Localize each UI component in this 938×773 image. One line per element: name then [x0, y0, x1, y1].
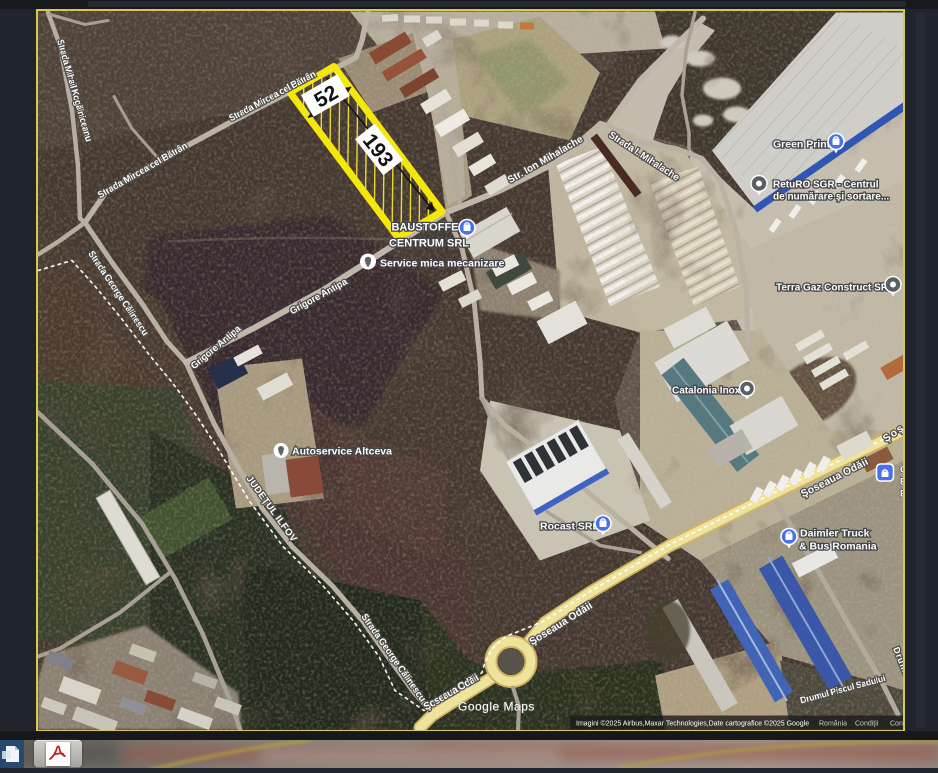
svg-text:Service mica mecanizare: Service mica mecanizare: [380, 258, 504, 270]
svg-text:Google Maps: Google Maps: [458, 700, 535, 714]
svg-text:Daimler Truck: Daimler Truck: [800, 528, 870, 540]
svg-text:BAUSTOFFE: BAUSTOFFE: [391, 222, 458, 234]
svg-text:Imagini ©2025 Airbus,Maxar Tec: Imagini ©2025 Airbus,Maxar Technologies,…: [576, 720, 809, 728]
svg-text:Autoservice Altceva: Autoservice Altceva: [292, 446, 392, 458]
svg-text:România: România: [819, 721, 847, 728]
svg-text:de numărare şi sortare...: de numărare şi sortare...: [773, 192, 889, 203]
svg-text:Conf: Conf: [890, 721, 903, 728]
svg-text:Condiţii: Condiţii: [855, 721, 879, 728]
svg-text:CENTRUM SRL: CENTRUM SRL: [389, 238, 469, 250]
svg-text:C: C: [900, 465, 903, 475]
svg-text:E: E: [900, 477, 903, 487]
svg-text:Green Print: Green Print: [773, 139, 831, 151]
svg-text:Catalonia Inox: Catalonia Inox: [672, 386, 741, 397]
svg-text:RetuRO SGR - Centrul: RetuRO SGR - Centrul: [773, 180, 879, 191]
svg-text:Rocast SRL: Rocast SRL: [540, 521, 600, 533]
svg-text:E: E: [900, 489, 903, 499]
svg-text:& Bus Romania: & Bus Romania: [799, 541, 877, 553]
svg-text:Terra Gaz Construct SRL: Terra Gaz Construct SRL: [776, 283, 894, 294]
